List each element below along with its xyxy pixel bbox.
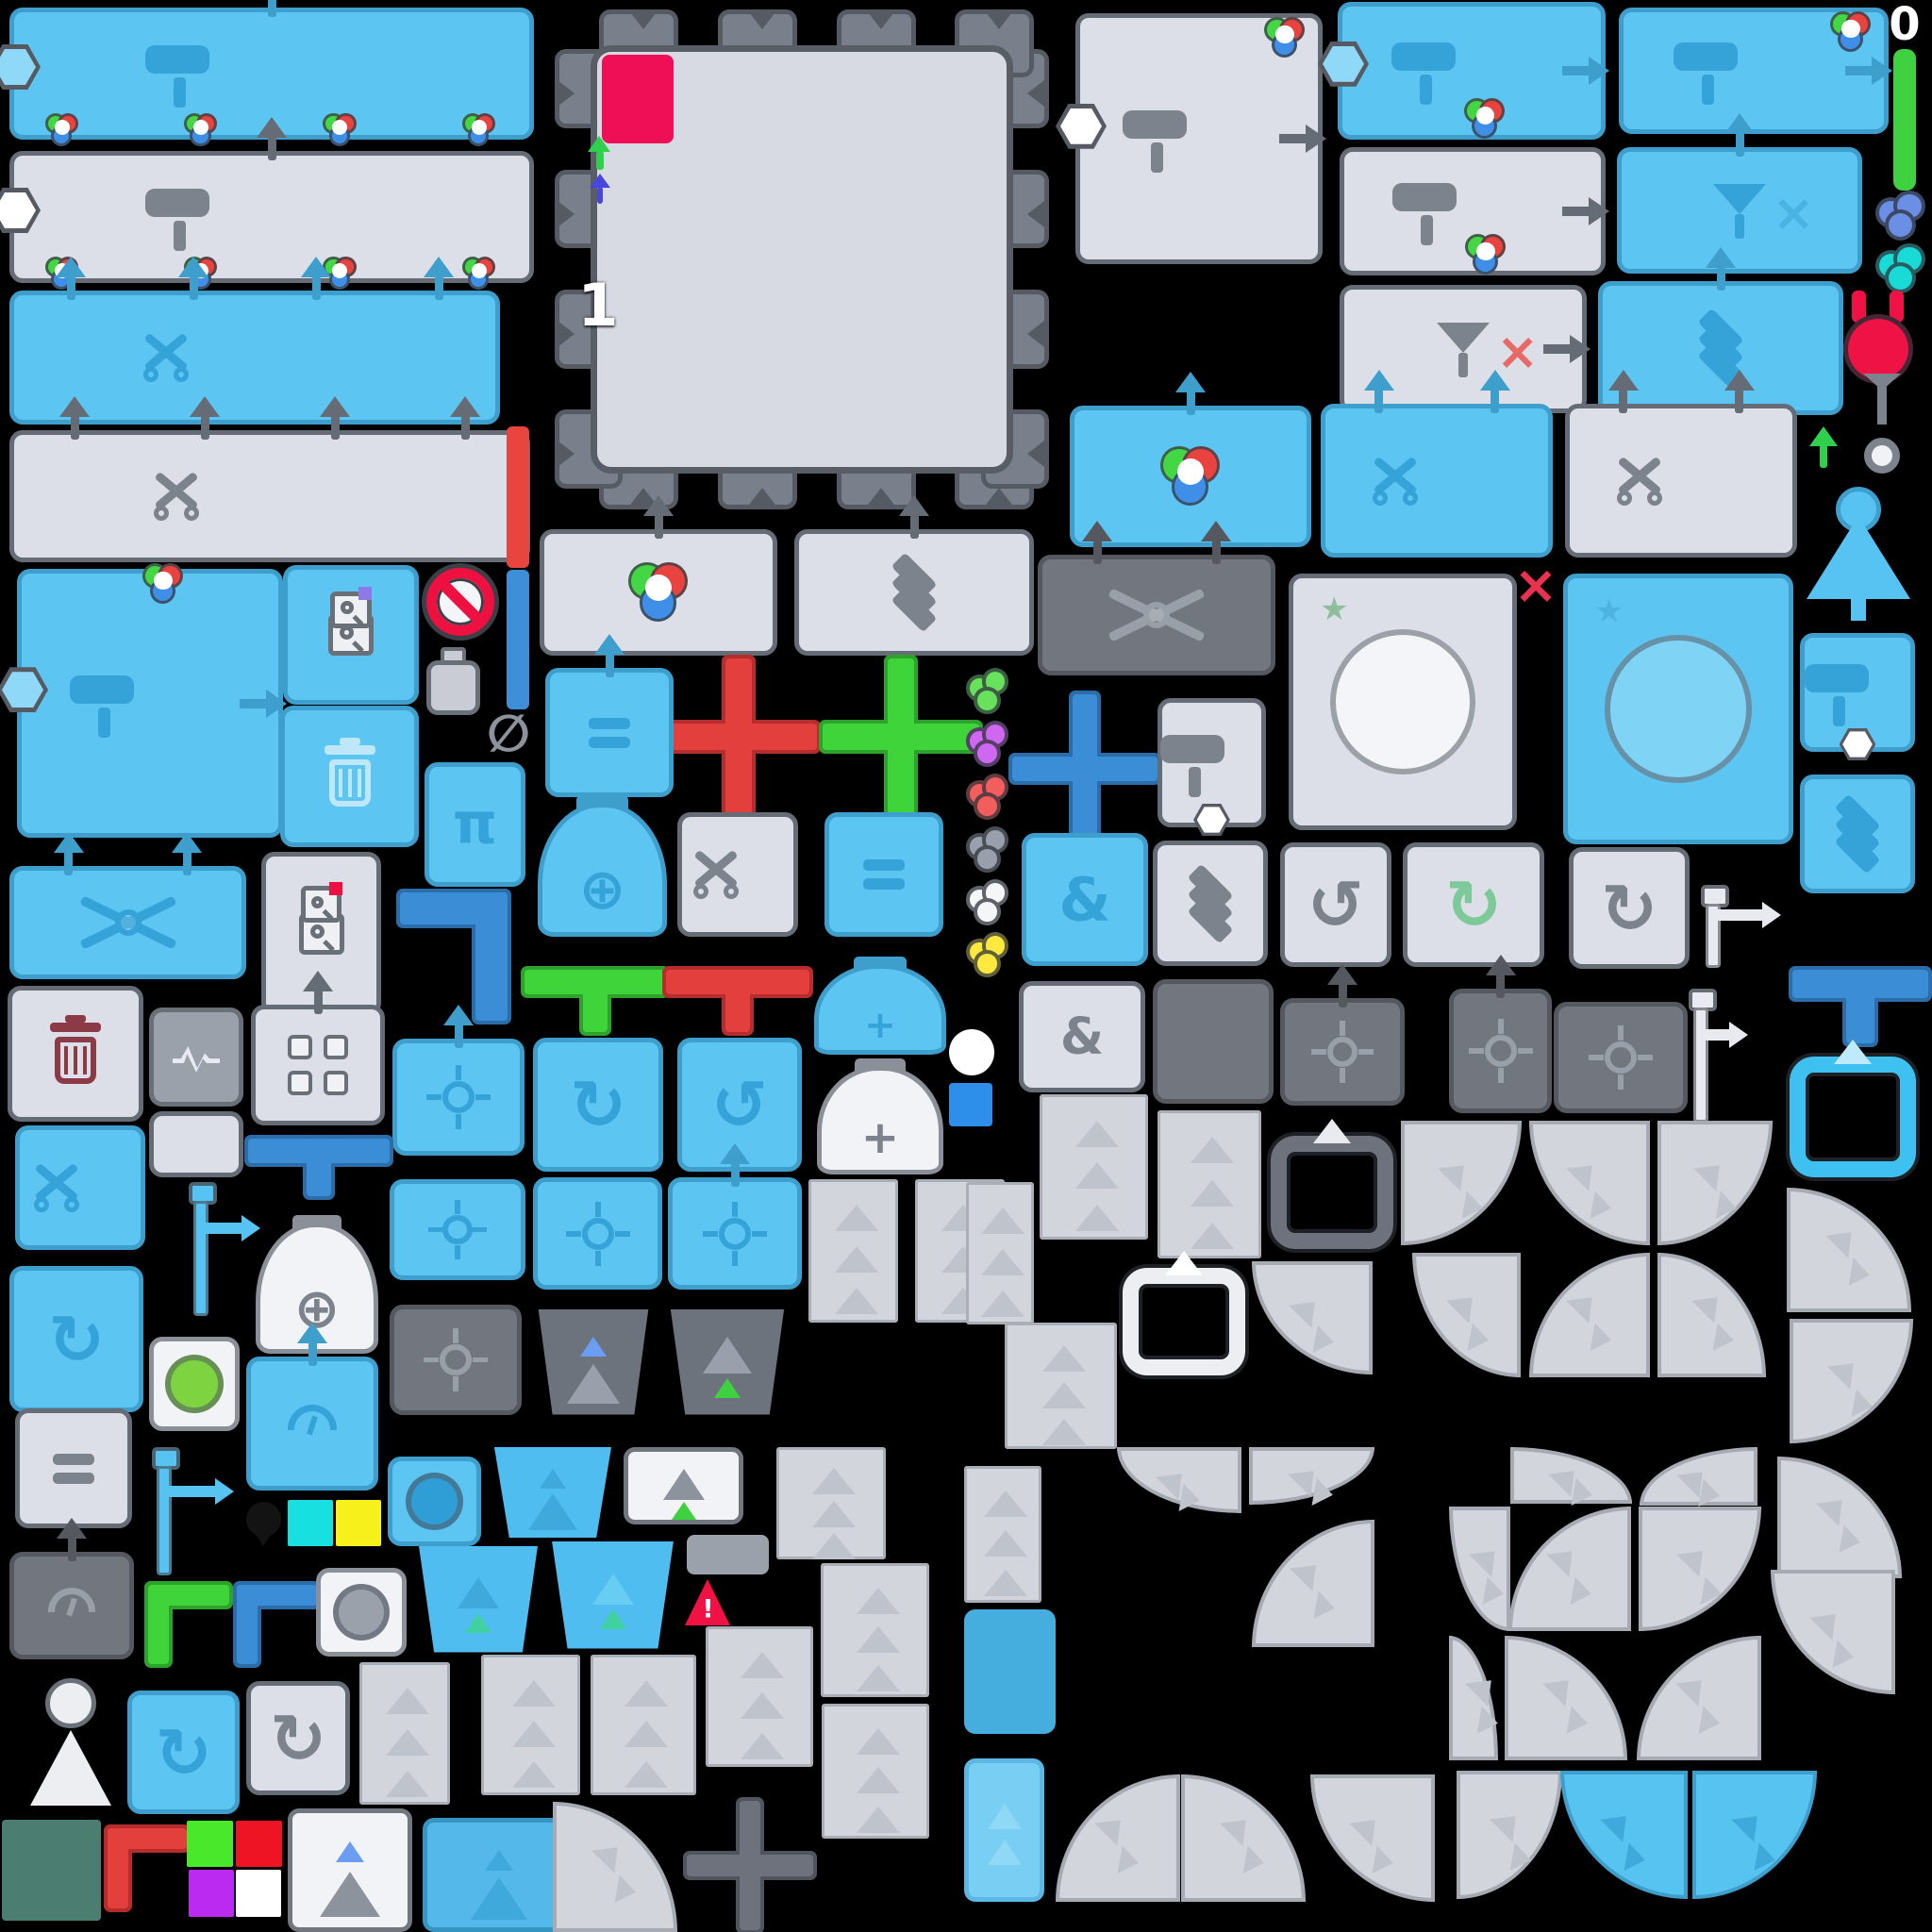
arrow-icon <box>301 257 331 277</box>
pole-arrow <box>1762 902 1781 928</box>
repeater-gray <box>15 1408 132 1528</box>
triangle-shape <box>981 1207 1024 1234</box>
rotator-gray-sm: ↻ <box>246 1681 350 1795</box>
swatch-white <box>236 1870 281 1917</box>
antenna-cone <box>1807 516 1910 599</box>
belt-curve-body <box>1508 1507 1631 1631</box>
arrow-icon <box>1175 372 1206 392</box>
wire-l-red <box>102 1823 187 1908</box>
triangle-shape <box>1220 1808 1257 1846</box>
filter-blue: × <box>1617 147 1862 274</box>
triangle-shape <box>512 1680 556 1707</box>
swatch-white-color <box>236 1870 281 1917</box>
belt-body <box>776 1447 886 1559</box>
rotator-180-gray: ↻ <box>1403 842 1544 967</box>
triangle-shape <box>471 1877 527 1920</box>
person-head <box>45 1678 95 1728</box>
triangle-shape <box>1439 1154 1476 1191</box>
triangle-shape <box>868 12 894 29</box>
trash-gray <box>8 986 143 1122</box>
painter-sm-gray <box>1158 698 1266 827</box>
arrow-icon <box>594 634 625 655</box>
pulse-icon <box>149 1008 243 1107</box>
triangle-shape <box>1311 1478 1335 1509</box>
belt-curve-blue-b <box>1692 1771 1817 1899</box>
dome-body: ⊕ <box>538 803 667 937</box>
triangle-shape <box>1816 1489 1854 1526</box>
shape-dots-blue <box>1875 191 1926 238</box>
arrow-upgrade-green <box>1807 426 1840 468</box>
swatch-cyan-color <box>288 1500 333 1546</box>
tunnel-dome-blue-a: ⊕ <box>538 803 667 937</box>
shape-dot <box>1885 209 1916 241</box>
belt-curve-04 <box>1787 1188 1911 1312</box>
pi-analyzer-blue: π <box>425 762 525 887</box>
belt-curve-body <box>1560 1771 1688 1899</box>
belt-curve-body <box>1449 1507 1510 1631</box>
arrow-icon <box>56 257 86 277</box>
dome-body: + <box>814 964 946 1055</box>
shape-dot <box>974 950 1001 977</box>
triangle-shape <box>1075 1162 1119 1189</box>
triangle-shape <box>558 80 575 107</box>
big-circle-icon <box>1330 629 1476 775</box>
triangle-shape <box>857 1767 900 1793</box>
arrow-icon <box>1724 113 1755 134</box>
square-dark-body <box>1153 979 1274 1104</box>
triangle-shape <box>1349 1808 1387 1846</box>
belt-l <box>822 1704 929 1839</box>
rotcw-icon: ↻ <box>9 1266 143 1412</box>
triangle-shape <box>1075 1205 1119 1231</box>
triangle-shape <box>558 441 575 467</box>
compass-icon <box>1280 998 1405 1106</box>
rotator-cw-gray: ↻ <box>1569 847 1690 969</box>
antenna-base <box>1851 596 1866 621</box>
triangle-shape <box>741 1652 784 1678</box>
triangle-shape <box>984 1530 1027 1557</box>
belt-curve-10 <box>1117 1447 1241 1513</box>
triangle-shape <box>1712 1323 1736 1354</box>
compass-icon <box>533 1177 662 1290</box>
belt-curve-13 <box>1510 1447 1632 1504</box>
balancer-blue <box>9 866 246 979</box>
triangle-shape <box>857 1728 900 1755</box>
belt-curve-body <box>1790 1319 1913 1443</box>
triangle-shape <box>1700 1576 1724 1607</box>
belt-curve-14 <box>1640 1447 1757 1506</box>
miner-blue <box>246 1357 378 1491</box>
rotator-ccw-gray: ↺ <box>1280 842 1391 967</box>
arrow-mini-blue <box>591 174 609 204</box>
triangle-shape <box>988 1840 1022 1865</box>
triangle-shape <box>1809 1603 1847 1641</box>
pole-arrow <box>215 1478 234 1505</box>
triangle-shape <box>1042 1419 1086 1445</box>
triangle-shape <box>1699 1706 1723 1737</box>
rotcw-icon: ↻ <box>127 1690 240 1814</box>
trash-icon <box>280 706 419 847</box>
shape-dots-gray <box>966 826 1009 874</box>
belt-j <box>706 1626 813 1767</box>
trash-icon <box>8 986 143 1122</box>
compass-icon <box>392 1039 525 1156</box>
swatch-cyan <box>288 1500 333 1546</box>
shape-dot <box>974 740 1001 767</box>
belt-curve-body <box>1401 1121 1522 1245</box>
triangle-shape <box>1469 1540 1507 1577</box>
belt-curve-18 <box>1639 1507 1761 1631</box>
belt-body <box>821 1563 929 1697</box>
antenna-blue <box>1807 487 1910 621</box>
storage-blue-b <box>824 812 943 937</box>
triangle-shape <box>386 1771 429 1797</box>
triangle-shape <box>1624 1842 1647 1874</box>
triangle-shape <box>1437 323 1490 353</box>
wire-cross-red <box>660 658 817 815</box>
big-circle-icon <box>406 1473 463 1530</box>
belt-curve-body <box>1529 1121 1650 1245</box>
plate-gray-sm <box>687 1535 769 1574</box>
wire-segment <box>725 970 750 1032</box>
belt-k <box>821 1563 929 1697</box>
pin-ring <box>1864 438 1900 474</box>
scissors-icon <box>1321 404 1553 558</box>
glyph-label: ↻ <box>270 1705 326 1773</box>
glyph-label: 1 <box>577 276 618 335</box>
wire-t-red <box>666 964 809 1032</box>
rotator-big-gray: ★ <box>1289 574 1517 830</box>
belt-curve-body <box>1457 1771 1562 1899</box>
sprite-atlas: 10××∅π⊕★&&↺↻↻×★⊕↻↻↺++↻↻! <box>0 0 1932 1932</box>
layers-icon <box>1153 841 1268 966</box>
pi-analyzer-blue-body: π <box>425 762 525 887</box>
roller-body <box>1674 42 1738 71</box>
arrow-icon <box>597 187 603 204</box>
wire-segment <box>660 724 817 750</box>
button-green <box>149 1337 240 1431</box>
triangle-shape <box>1715 1191 1739 1222</box>
triangle-shape <box>1179 1483 1203 1514</box>
pin-stem <box>1877 387 1887 425</box>
belt-curve-21 <box>1505 1636 1627 1760</box>
belt-curve-blue-a <box>1560 1771 1688 1899</box>
wire-t-blue-right <box>1792 964 1928 1043</box>
canister-body <box>426 660 480 715</box>
tunnel-dome-white-b: + <box>817 1066 943 1174</box>
tunnel-body <box>491 1447 615 1541</box>
triangle-shape <box>857 1807 900 1833</box>
compass-icon <box>1554 1002 1688 1113</box>
triangle-shape <box>1042 1345 1086 1372</box>
belt-d <box>1158 1110 1261 1258</box>
pole-arm <box>1712 909 1768 921</box>
wire-segment <box>1012 757 1158 781</box>
belt-body <box>966 1182 1034 1324</box>
triangle-shape <box>540 1469 566 1489</box>
triangle-shape <box>749 12 775 29</box>
scissors-icon <box>9 430 530 562</box>
belt-curve-body <box>1252 1520 1374 1647</box>
belt-curve-20 <box>1449 1636 1498 1760</box>
triangle-shape <box>988 1804 1022 1829</box>
roller-body <box>1123 110 1187 139</box>
triangle-shape <box>749 488 775 505</box>
belt-e <box>966 1182 1034 1324</box>
glyph-label: ! <box>702 1598 713 1624</box>
triangle-shape <box>567 1364 620 1404</box>
belt-curve-25 <box>1181 1774 1306 1902</box>
roller-icon <box>1800 633 1915 752</box>
tunnel-dome-blue-b: + <box>814 964 946 1055</box>
belt-curve-01 <box>1401 1121 1522 1245</box>
triangle-shape <box>1075 1121 1119 1147</box>
pole-arrow <box>1729 1022 1748 1048</box>
triangle-shape <box>458 1577 499 1608</box>
wire-segment <box>108 1828 128 1908</box>
belt-n <box>964 1466 1041 1603</box>
quadbox-gray <box>251 1005 385 1125</box>
glyph-label: ↺ <box>1307 871 1364 939</box>
splitter-dark-d <box>1554 1002 1688 1113</box>
belt-curve-09 <box>1252 1261 1373 1374</box>
belt-curve-26 <box>1310 1774 1435 1902</box>
arrow-icon <box>59 396 90 417</box>
wire-t-green <box>525 964 666 1032</box>
triangle-shape <box>1027 441 1044 467</box>
belt-curve-body <box>1639 1507 1761 1631</box>
belt-curve-08 <box>1790 1319 1913 1443</box>
hub-goal-marker <box>602 55 674 143</box>
belt-curve-body <box>1056 1774 1180 1902</box>
arrow-icon <box>1327 964 1357 985</box>
triangle-shape <box>600 1609 626 1629</box>
triangle-shape <box>1373 1846 1396 1877</box>
triangle-shape <box>1042 1382 1086 1408</box>
warning-icon: ! <box>685 1579 731 1625</box>
triangle-shape <box>630 12 657 29</box>
big-circle-icon <box>333 1584 390 1641</box>
tunnel-blue-big <box>491 1447 615 1541</box>
roller-icon <box>1340 147 1606 275</box>
color-circle <box>645 575 672 601</box>
wire-segment <box>475 892 508 1021</box>
glyph-label: ⊕ <box>579 862 626 919</box>
boxbars-icon <box>824 812 943 937</box>
triangle-shape <box>986 488 1012 505</box>
triangle-shape <box>1027 321 1044 347</box>
triangle-shape <box>1094 1808 1132 1846</box>
arrow-icon <box>257 117 287 138</box>
scissors-icon <box>15 1125 145 1250</box>
trash-blue <box>280 706 419 847</box>
triangle-shape <box>835 1246 878 1273</box>
rotator-big-blue: ★ <box>1563 574 1793 844</box>
belt-curve-a <box>553 1802 677 1932</box>
triangle-shape <box>812 1533 856 1559</box>
wire-pole-blue-b <box>146 1447 242 1575</box>
triangle-shape <box>1191 1137 1234 1163</box>
belt-curve-body <box>1181 1774 1306 1902</box>
funnel-icon <box>1617 147 1862 274</box>
triangle-shape <box>1483 1576 1507 1607</box>
bar-red-color <box>507 426 529 568</box>
belt-body <box>1158 1110 1261 1258</box>
color-circle <box>1177 458 1204 485</box>
glyph-label: ↻ <box>155 1719 211 1787</box>
triangle-shape <box>1713 184 1766 214</box>
triangle-shape <box>591 1837 629 1874</box>
belt-body <box>591 1655 696 1795</box>
belt-curve-17 <box>1508 1507 1631 1631</box>
glyph-label: π <box>453 796 497 852</box>
shape-dots-cyan <box>1875 243 1926 291</box>
belt-body <box>822 1704 929 1839</box>
triangle-shape <box>1313 1591 1337 1623</box>
shape-dot <box>974 845 1001 873</box>
tunnel-body <box>415 1546 541 1656</box>
belt-h <box>481 1655 580 1795</box>
triangle-shape <box>625 1680 668 1707</box>
pin-valve-icon <box>1851 374 1913 479</box>
plug-icon <box>1843 291 1913 375</box>
arrow-icon <box>720 1143 750 1164</box>
pole-stem <box>1693 1008 1708 1123</box>
roller-body <box>1392 183 1457 211</box>
arrow-icon <box>54 832 84 853</box>
hub <box>555 9 1049 509</box>
belt-curve-07 <box>1657 1253 1766 1377</box>
triangle-shape <box>857 1626 900 1653</box>
rotcw-icon: ↻ <box>246 1681 350 1795</box>
triangle-shape <box>1699 1478 1723 1509</box>
glyph-label: & <box>1060 1011 1104 1061</box>
cutter-quad-blue-sm <box>15 1125 145 1250</box>
splitter-dark-b <box>1280 998 1405 1106</box>
arrow-icon <box>450 396 480 417</box>
null-glyph: ∅ <box>486 710 531 758</box>
triangle-shape <box>386 1729 429 1756</box>
triangle-shape <box>1566 1706 1590 1737</box>
arrow-icon <box>1820 444 1828 468</box>
triangle-shape <box>320 1872 380 1917</box>
stacker-gray <box>794 529 1034 656</box>
arrow-icon <box>643 495 674 516</box>
scissors-icon <box>1565 404 1797 558</box>
roller-handle <box>98 708 110 738</box>
shape-dot <box>974 687 1001 714</box>
and-gate-gray: & <box>1019 981 1145 1092</box>
rotator-cw-blue-a: ↻ <box>9 1266 143 1412</box>
arrow-icon <box>1201 521 1231 541</box>
triangle-shape <box>1510 1842 1534 1874</box>
belt-curve-15 <box>1777 1457 1902 1578</box>
rgb-mixer-icon <box>628 562 689 623</box>
storage-frame-blue <box>1790 1043 1916 1177</box>
big-circle-icon <box>165 1355 223 1412</box>
dot-white <box>949 1029 994 1075</box>
triangle-shape <box>741 1692 784 1719</box>
roller-body <box>1160 735 1224 763</box>
arrow-icon <box>899 495 929 516</box>
triangle-shape <box>981 1249 1024 1275</box>
triangle-shape <box>615 1875 639 1907</box>
belt-curve-body <box>1771 1570 1895 1694</box>
compass-icon <box>668 1177 802 1290</box>
boxbars-icon <box>545 668 674 797</box>
screen-corner <box>329 882 342 895</box>
glyph-label: & <box>1058 870 1110 929</box>
triangle-shape <box>1825 1221 1863 1258</box>
swatch-yellow-color <box>336 1500 381 1546</box>
arrow-icon <box>1364 370 1394 391</box>
splitter-blue-right <box>392 1039 525 1156</box>
belt-curve-body <box>1412 1253 1521 1377</box>
swatch-red-color <box>236 1821 282 1867</box>
roller-body <box>1805 664 1869 692</box>
arrow-mini-green <box>590 136 610 170</box>
triangle-shape <box>558 201 575 227</box>
stacker-blue <box>1598 281 1843 415</box>
belt-curve-body <box>1249 1447 1374 1505</box>
triangle-shape <box>1461 1191 1485 1222</box>
rgbball-icon <box>540 529 777 656</box>
belt-curve-body <box>1777 1457 1902 1578</box>
triangle-shape <box>1191 1223 1234 1249</box>
compass-icon <box>1449 989 1552 1113</box>
glyph-label: ↻ <box>570 1071 626 1139</box>
swatch-purple <box>189 1870 234 1917</box>
compass-icon <box>390 1305 522 1415</box>
tunnel-blue-x <box>548 1541 677 1652</box>
pin-white <box>1690 989 1744 1123</box>
wire-l-green <box>142 1579 229 1664</box>
plate-blue <box>964 1609 1056 1734</box>
belt-curve-12 <box>1252 1520 1374 1647</box>
painter-double-blue <box>17 569 283 838</box>
belt-body <box>706 1626 813 1767</box>
glyph-label: + <box>864 1006 896 1043</box>
balancer-dark <box>1038 555 1275 675</box>
belt-curve-06 <box>1529 1253 1650 1377</box>
triangle-shape <box>812 1501 856 1527</box>
reader-gray <box>9 1552 134 1659</box>
triangle-shape <box>984 1570 1027 1596</box>
belt-a <box>808 1179 898 1323</box>
painter-blue-a <box>1338 2 1606 140</box>
belt-curve-body <box>1657 1253 1766 1377</box>
belt-curve-05 <box>1412 1253 1521 1377</box>
pole-arm <box>200 1223 245 1234</box>
triangle-shape <box>1312 1324 1336 1356</box>
button-blue <box>388 1457 481 1546</box>
glyph-label: × <box>1514 559 1558 612</box>
rotccw-icon: ↺ <box>1280 842 1391 967</box>
triangle-shape <box>465 1613 491 1633</box>
belt-body <box>1040 1094 1148 1240</box>
splitter-blue-left <box>390 1179 525 1280</box>
splitter-dark-c <box>1449 989 1552 1113</box>
triangle-shape <box>336 1841 364 1862</box>
triangle-shape <box>528 1493 577 1530</box>
xcross-icon <box>1038 555 1275 675</box>
belt-curve-body <box>1505 1636 1627 1760</box>
wire-segment <box>687 1855 813 1876</box>
belt-curve-body <box>1657 1121 1773 1245</box>
layers-icon <box>794 529 1034 656</box>
frame-body <box>1123 1268 1245 1375</box>
triangle-shape <box>1546 1540 1584 1577</box>
